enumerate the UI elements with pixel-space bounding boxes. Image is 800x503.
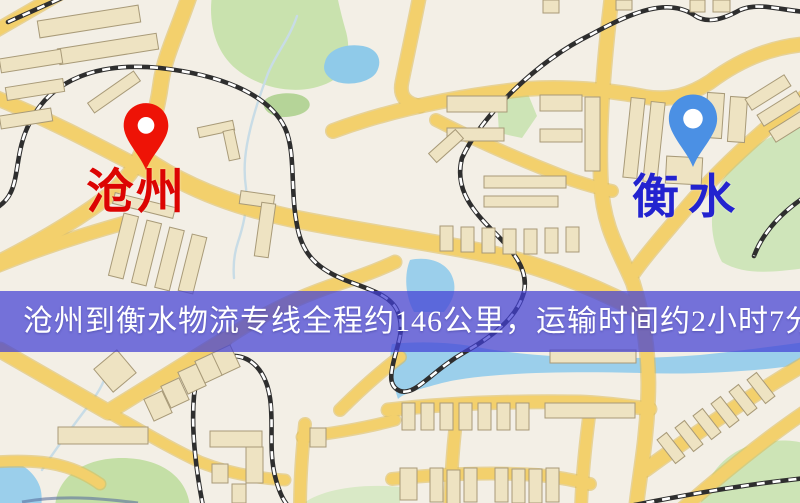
route-info-banner: 沧州到衡水物流专线全程约146公里，运输时间约2小时7分钟. xyxy=(0,291,800,352)
origin-city-label: 沧州 xyxy=(86,168,186,218)
map-screenshot: 沧州 衡水 沧州到衡水物流专线全程约146公里，运输时间约2小时7分钟. xyxy=(0,0,800,503)
base-map xyxy=(0,0,800,503)
destination-city-label: 衡水 xyxy=(632,174,744,223)
